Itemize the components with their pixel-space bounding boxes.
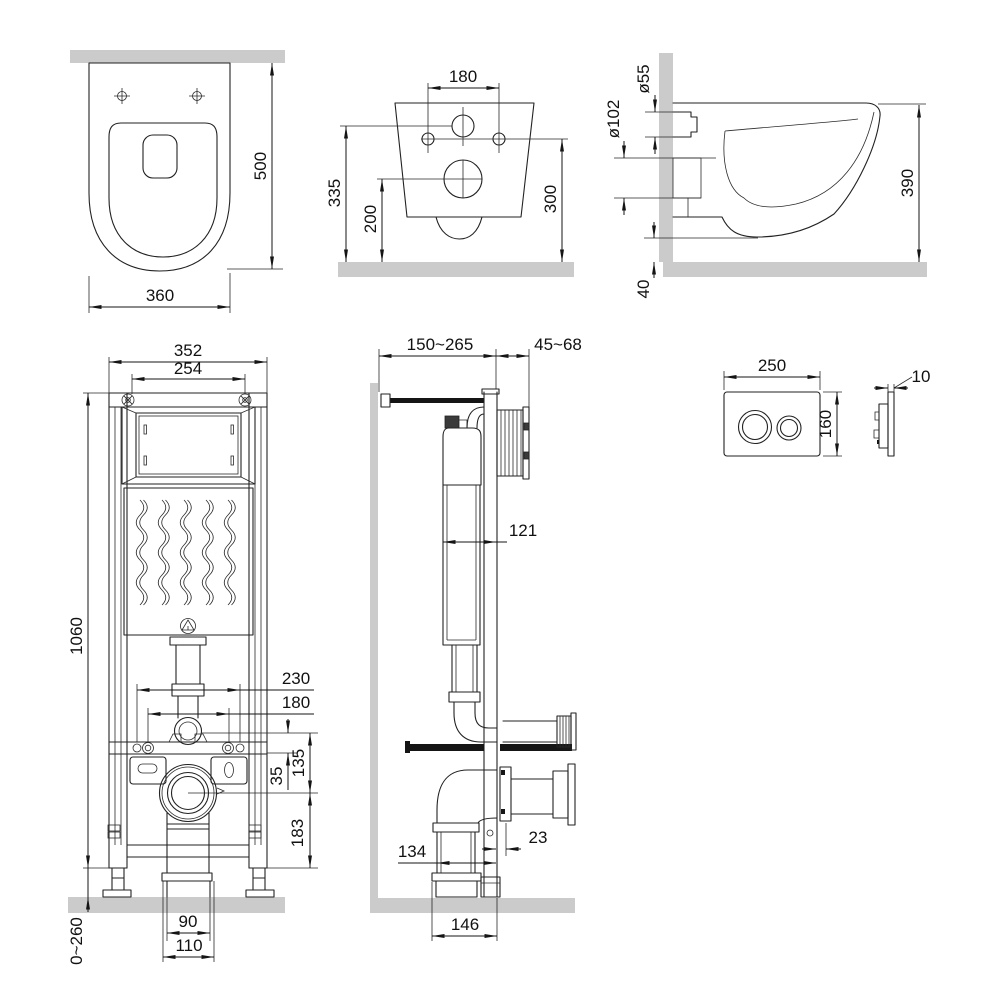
- dim-depth: 390: [898, 169, 917, 197]
- dim-width: 360: [146, 286, 174, 305]
- brand-logo-icon: [181, 619, 196, 634]
- dim-offset-183: 183: [288, 819, 307, 847]
- dim-depth-adjust: 150~265: [407, 335, 474, 354]
- wall-bar-vertical: [370, 383, 378, 898]
- frame-feet: [103, 868, 274, 897]
- insulation-panel: [124, 488, 253, 635]
- dim-plate-height: 160: [816, 410, 835, 438]
- dim-drain-offset: 134: [398, 842, 426, 861]
- wall-bar-vertical: [659, 53, 673, 262]
- outlet-stub: [673, 158, 701, 198]
- dim-offset-35: 35: [267, 767, 286, 786]
- flush-plate-side-view: [874, 392, 894, 456]
- wall-bar: [70, 50, 285, 63]
- floor-bar: [68, 897, 285, 913]
- flush-button-small: [777, 416, 801, 440]
- dim-wall-embed: 45~68: [534, 335, 582, 354]
- dim-anchor-outer: 230: [282, 669, 310, 688]
- dim-anchor-inner: 180: [282, 693, 310, 712]
- dim-frame-width: 352: [174, 341, 202, 360]
- flush-pipe-front: [170, 637, 206, 718]
- flush-button-large: [739, 411, 772, 444]
- dim-outlet-offset: 23: [529, 828, 548, 847]
- dim-bottom-clearance: 40: [634, 280, 653, 299]
- foot-bolts: [108, 825, 261, 838]
- technical-drawing: 500 360 180 335 200 300 ø55 ø102 390 40: [0, 0, 1000, 1000]
- water-inlet-flange: [169, 718, 207, 745]
- flush-pipe-side: [449, 645, 497, 742]
- dim-mount-height: 300: [541, 185, 560, 213]
- toilet-rear-bump: [436, 217, 482, 239]
- frame-side-view: 150~265 45~68 121 23 134 146: [370, 335, 582, 941]
- dim-outlet-diameter: ø102: [604, 100, 623, 139]
- dim-inlet-diameter: ø55: [634, 64, 653, 93]
- mounting-hole-right: [189, 88, 205, 104]
- dim-base-depth: 146: [451, 915, 479, 934]
- dim-outlet-height: 200: [361, 205, 380, 233]
- dim-inlet-height: 335: [325, 179, 344, 207]
- floor-bar: [663, 262, 927, 277]
- dim-plate-width: 250: [758, 356, 786, 375]
- toilet-top-view: 500 360: [70, 50, 285, 313]
- frame-structure: [109, 393, 267, 868]
- inspection-window: [122, 407, 255, 484]
- frame-front-view: 352 254 1060 230 180 35 135 183 0~260 90…: [67, 341, 318, 965]
- bracket-plates: [130, 757, 247, 784]
- dim-frame-height: 1060: [67, 617, 86, 655]
- wall-sleeve-ribbed: [497, 407, 529, 479]
- mounting-hole-left: [114, 88, 130, 104]
- toilet-outline: [89, 63, 230, 271]
- dim-tank-depth: 121: [509, 521, 537, 540]
- dim-bracket-spacing: 254: [174, 359, 202, 378]
- floor-bar: [338, 262, 574, 277]
- inlet-stub: [673, 112, 697, 137]
- cistern-tank-side: [443, 407, 484, 645]
- dim-foot-adjust: 0~260: [67, 917, 86, 965]
- drain-pipe-front: [162, 813, 212, 897]
- outlet-connector-side: [500, 764, 575, 825]
- flush-plate-view: 250 160 10: [724, 356, 930, 456]
- seat-opening: [143, 135, 177, 178]
- toilet-seat: [109, 123, 217, 257]
- dim-drain-width: 90: [179, 912, 198, 931]
- toilet-side-interior: [724, 112, 874, 207]
- mounting-crossbar: [109, 742, 267, 754]
- screw-icon: [122, 394, 134, 406]
- bracket-bar-side: [405, 741, 572, 753]
- dim-plate-thickness: 10: [912, 367, 931, 386]
- dim-offset-135: 135: [289, 749, 308, 777]
- threaded-rod: [381, 394, 484, 407]
- toilet-rear-view: 180 335 200 300: [325, 67, 574, 277]
- toilet-side-view: ø55 ø102 390 40: [604, 53, 927, 298]
- floor-bar: [370, 898, 575, 913]
- dim-depth: 500: [251, 152, 270, 180]
- technical-drawing-page: 500 360 180 335 200 300 ø55 ø102 390 40: [0, 0, 1000, 1000]
- dim-drain-flange-width: 110: [175, 936, 202, 955]
- dim-hole-spacing: 180: [449, 67, 477, 86]
